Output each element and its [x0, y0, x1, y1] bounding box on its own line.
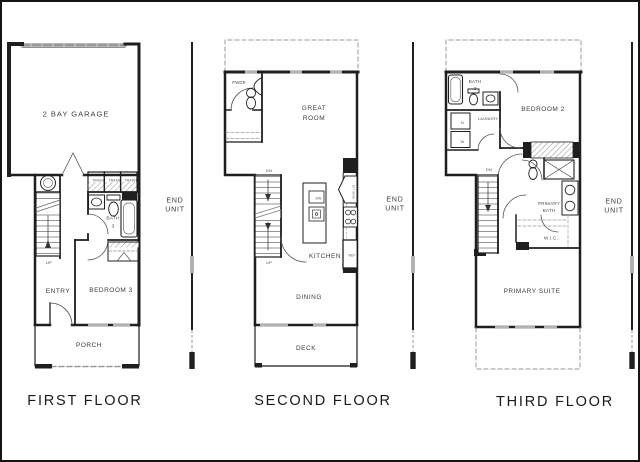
third-floor-title: THIRD FLOOR	[496, 395, 614, 410]
roof-outline	[225, 40, 358, 72]
door-arc	[500, 128, 520, 148]
window	[313, 323, 326, 326]
water-heater-icon	[41, 176, 56, 191]
range-icon	[309, 207, 324, 221]
unit-boundary-line	[189, 42, 194, 369]
pwdr-label: PWDR	[232, 81, 246, 85]
up-label: UP	[46, 261, 52, 265]
window	[245, 70, 257, 73]
second-floor-title: SECOND FLOOR	[254, 394, 392, 409]
door-arc	[50, 303, 72, 325]
door-arc	[541, 215, 558, 232]
door-arc	[478, 134, 494, 150]
bath3-label: 3	[112, 225, 115, 230]
sink-icon	[89, 195, 105, 209]
toilet-icon	[468, 89, 479, 105]
primary-suite-label: PRIMARY SUITE	[504, 289, 561, 296]
primary-bath-label: BATH	[543, 209, 555, 214]
trash-label: TRASH	[109, 179, 121, 182]
window	[260, 323, 288, 326]
kitchen-island	[303, 183, 326, 243]
porch-label: PORCH	[76, 343, 102, 350]
door-arc	[281, 237, 306, 262]
refrigerator-label: REF	[349, 254, 356, 257]
unit-boundary-line	[410, 42, 415, 369]
dn-label: DN	[266, 169, 272, 173]
washer-label: W	[461, 140, 465, 144]
bath3-label: BATH	[106, 218, 119, 223]
window	[544, 325, 557, 328]
third-floor-plan	[446, 40, 581, 369]
door-arc	[500, 74, 518, 92]
stairs-up-icon	[36, 192, 60, 256]
bedroom3-label: BEDROOM 3	[89, 288, 133, 295]
dining-label: DINING	[296, 295, 322, 302]
window	[113, 323, 130, 326]
dishwasher-label: DW	[316, 197, 322, 200]
great-room-label: GREAT	[302, 106, 326, 113]
door-arc	[522, 160, 542, 180]
trash-label: TRASH	[125, 179, 137, 182]
entry-label: ENTRY	[46, 289, 70, 296]
cooktop-icon	[344, 207, 358, 227]
door-arc	[498, 154, 522, 178]
end-unit-label: END	[166, 198, 183, 205]
door-arc	[88, 214, 108, 234]
sink-icon	[483, 92, 498, 105]
window	[290, 70, 302, 73]
stairs-icon	[255, 175, 281, 257]
end-unit-label: UNIT	[165, 207, 185, 214]
bedroom2-label: BEDROOM 2	[521, 107, 565, 114]
dn-label: DN	[486, 168, 492, 172]
garage-label: 2 BAY GARAGE	[43, 110, 110, 118]
garage-door-icon	[22, 45, 125, 48]
window	[515, 325, 535, 328]
trash-label: TRASH	[92, 179, 104, 182]
roof-outline	[446, 40, 581, 72]
toilet-icon	[247, 89, 256, 110]
walk-in-closet	[516, 215, 580, 250]
up-label: UP	[266, 261, 272, 265]
vanity-icon	[562, 181, 578, 215]
primary-bath-label: PRIMARY	[538, 202, 560, 207]
window	[88, 323, 108, 326]
bath2-label: BATH	[469, 80, 481, 85]
door-arc	[231, 88, 253, 110]
window	[495, 325, 509, 328]
stairs-down-icon	[478, 175, 498, 253]
end-unit-label: UNIT	[385, 206, 405, 213]
kitchen-sink-label: KIT SINK	[351, 184, 354, 198]
tub-icon	[449, 75, 463, 104]
second-floor-plan	[225, 40, 358, 368]
end-unit-label: UNIT	[604, 208, 624, 215]
deck-roof-outline	[476, 328, 580, 369]
bedroom2-closet	[523, 142, 580, 158]
great-room-label: ROOM	[303, 116, 325, 123]
kitchen-label: KITCHEN	[309, 254, 341, 261]
bedroom-closet	[108, 242, 139, 261]
tub-icon	[121, 200, 137, 237]
window	[330, 70, 342, 73]
floor-plans-drawing	[2, 2, 638, 460]
unit-boundary-line	[629, 42, 634, 369]
end-unit-label: END	[605, 199, 622, 206]
shower-icon	[544, 160, 574, 179]
bath2-label: 2	[474, 87, 477, 92]
floor-plan-sheet: 2 BAY GARAGE TRASH TRASH TRASH BATH 3 EN…	[0, 0, 640, 462]
deck-label: DECK	[296, 346, 316, 353]
window	[500, 70, 513, 73]
first-floor-plan	[9, 44, 139, 369]
door-arc	[503, 195, 526, 218]
toilet-icon	[107, 195, 120, 216]
first-floor-title: FIRST FLOOR	[27, 394, 142, 409]
window	[540, 70, 554, 73]
end-unit-label: END	[386, 197, 403, 204]
laundry-label: LAUNDRY	[478, 117, 498, 121]
dryer-label: D	[461, 121, 464, 125]
door-arc	[88, 240, 108, 260]
wic-label: W.I.C.	[544, 238, 558, 243]
